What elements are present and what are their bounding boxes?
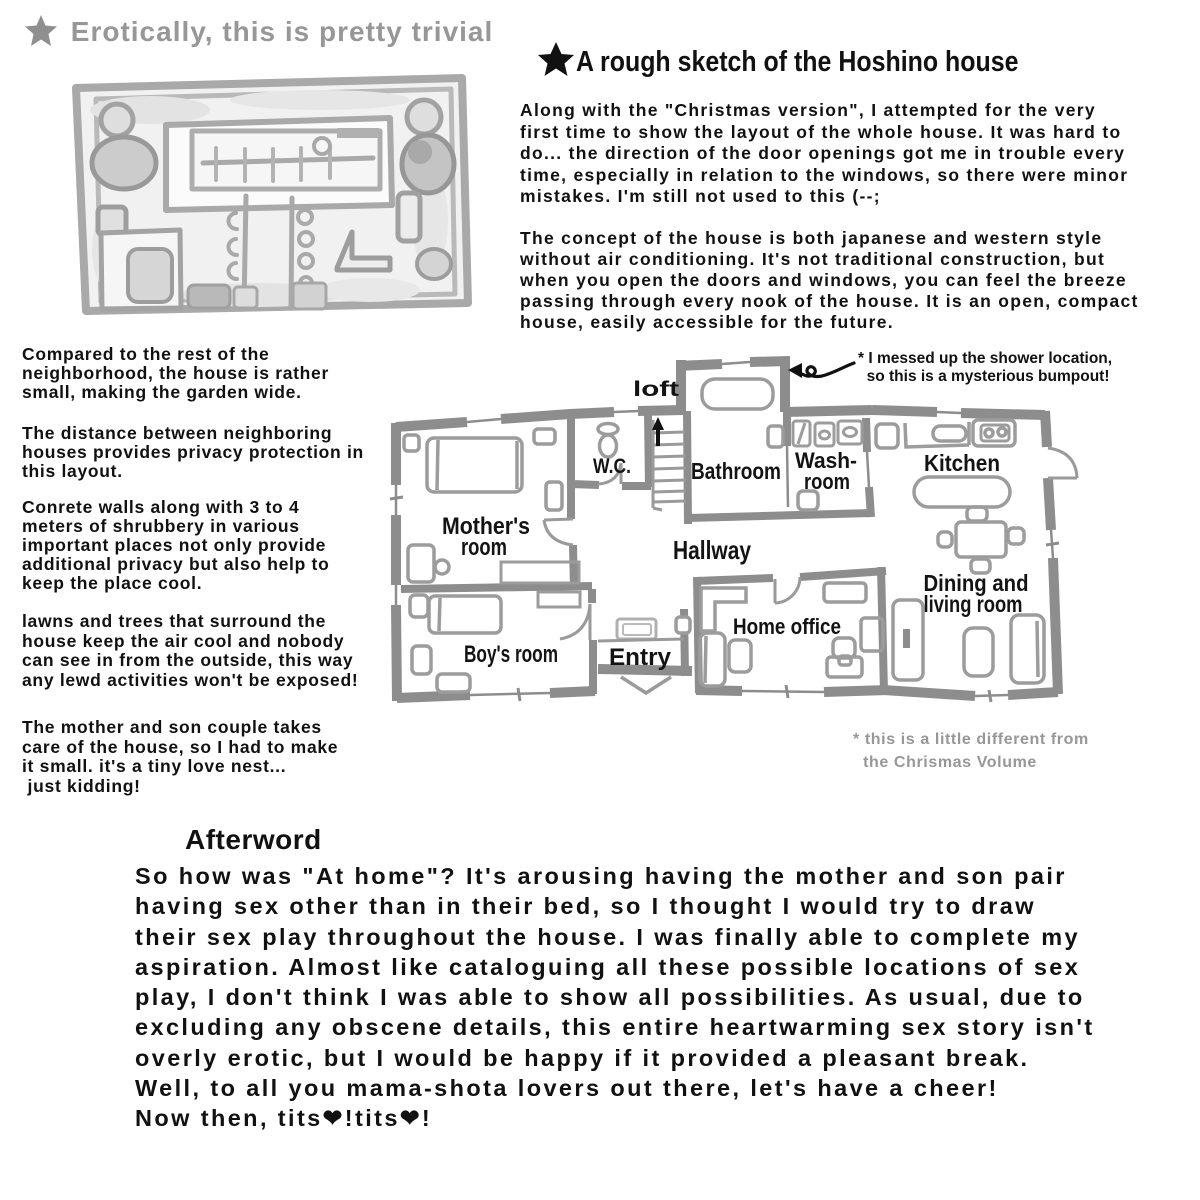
svg-text:Boy's room: Boy's room [464,641,558,668]
svg-text:Bathroom: Bathroom [691,458,781,484]
svg-text:Entry: Entry [609,644,672,671]
svg-text:Hallway: Hallway [673,535,751,565]
svg-text:room: room [461,534,507,561]
svg-text:Kitchen: Kitchen [924,450,1000,476]
svg-text:loft: loft [633,378,679,401]
svg-text:W.C.: W.C. [593,455,631,478]
svg-text:Home office: Home office [733,614,841,639]
svg-text:living room: living room [924,591,1023,617]
svg-text:room: room [804,469,850,494]
